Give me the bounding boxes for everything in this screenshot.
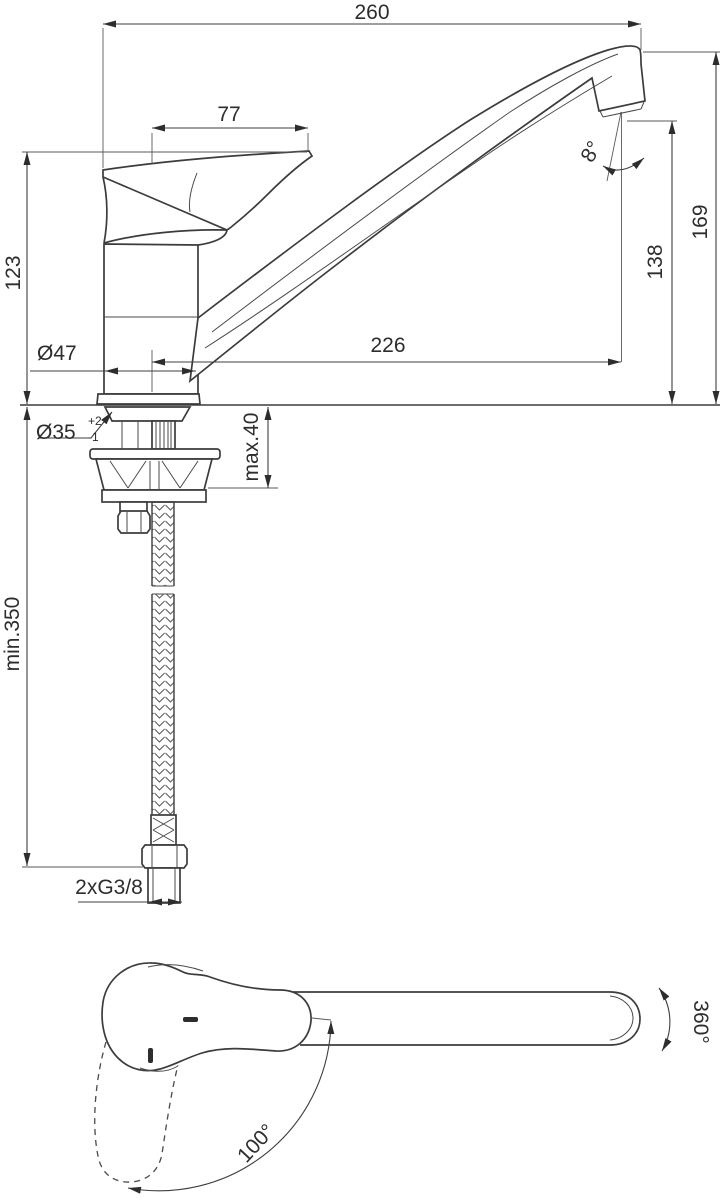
hose-crimp-fitting xyxy=(151,815,176,845)
label-handle-height: 123 xyxy=(2,255,25,290)
label-outlet-height: 138 xyxy=(644,244,667,279)
cartridge-stem xyxy=(152,421,175,449)
dim-spout-rotation-arc xyxy=(659,988,670,1051)
label-hose-connection: 2xG3/8 xyxy=(75,876,143,899)
label-hose-length: min.350 xyxy=(1,597,24,672)
technical-drawing: 260 77 123 Ø47 226 138 169 8° xyxy=(0,0,721,1200)
hex-nut-bottom xyxy=(142,845,187,868)
spout xyxy=(190,46,645,381)
label-deck-thickness: max.40 xyxy=(240,413,263,482)
label-spout-rotation: 360° xyxy=(689,1000,712,1043)
label-outlet-angle: 8° xyxy=(576,137,606,166)
connection-tailpiece xyxy=(148,868,180,903)
label-lever-swing: 100° xyxy=(233,1120,279,1167)
clamping-cone xyxy=(96,459,212,490)
hex-nut-top xyxy=(118,511,150,533)
label-overall-width: 260 xyxy=(354,1,389,24)
supply-hose xyxy=(151,502,175,845)
label-lever-length: 77 xyxy=(217,103,240,126)
label-body-diameter: Ø47 xyxy=(37,342,77,365)
label-hole-diameter: Ø35 xyxy=(36,421,76,444)
mounting-hardware xyxy=(90,407,220,903)
handle-marker-vertical xyxy=(148,1048,153,1063)
label-spout-top-height: 169 xyxy=(689,204,712,239)
handle-marker-horizontal xyxy=(183,1017,198,1022)
top-view: 100° 360° xyxy=(95,963,712,1191)
washer-plate xyxy=(90,449,220,459)
spout-rotation-dimension: 360° xyxy=(659,988,712,1051)
faucet-dimension-drawing: 260 77 123 Ø47 226 138 169 8° xyxy=(0,0,721,1200)
handle-lever xyxy=(103,151,312,230)
base-flange xyxy=(97,394,200,404)
spout-plan xyxy=(268,992,640,1045)
side-view: 260 77 123 Ø47 226 138 169 8° xyxy=(1,1,720,903)
mounting-stud xyxy=(122,421,138,449)
label-hole-tolerance-plus: +2 xyxy=(88,414,102,428)
label-hole-tolerance-minus: -1 xyxy=(88,430,99,444)
clamp-ring xyxy=(102,490,206,502)
label-spout-reach: 226 xyxy=(370,334,405,357)
handle-plan xyxy=(102,963,311,1071)
dim-outlet-angle-arc xyxy=(603,158,644,170)
base-gasket xyxy=(105,407,190,421)
